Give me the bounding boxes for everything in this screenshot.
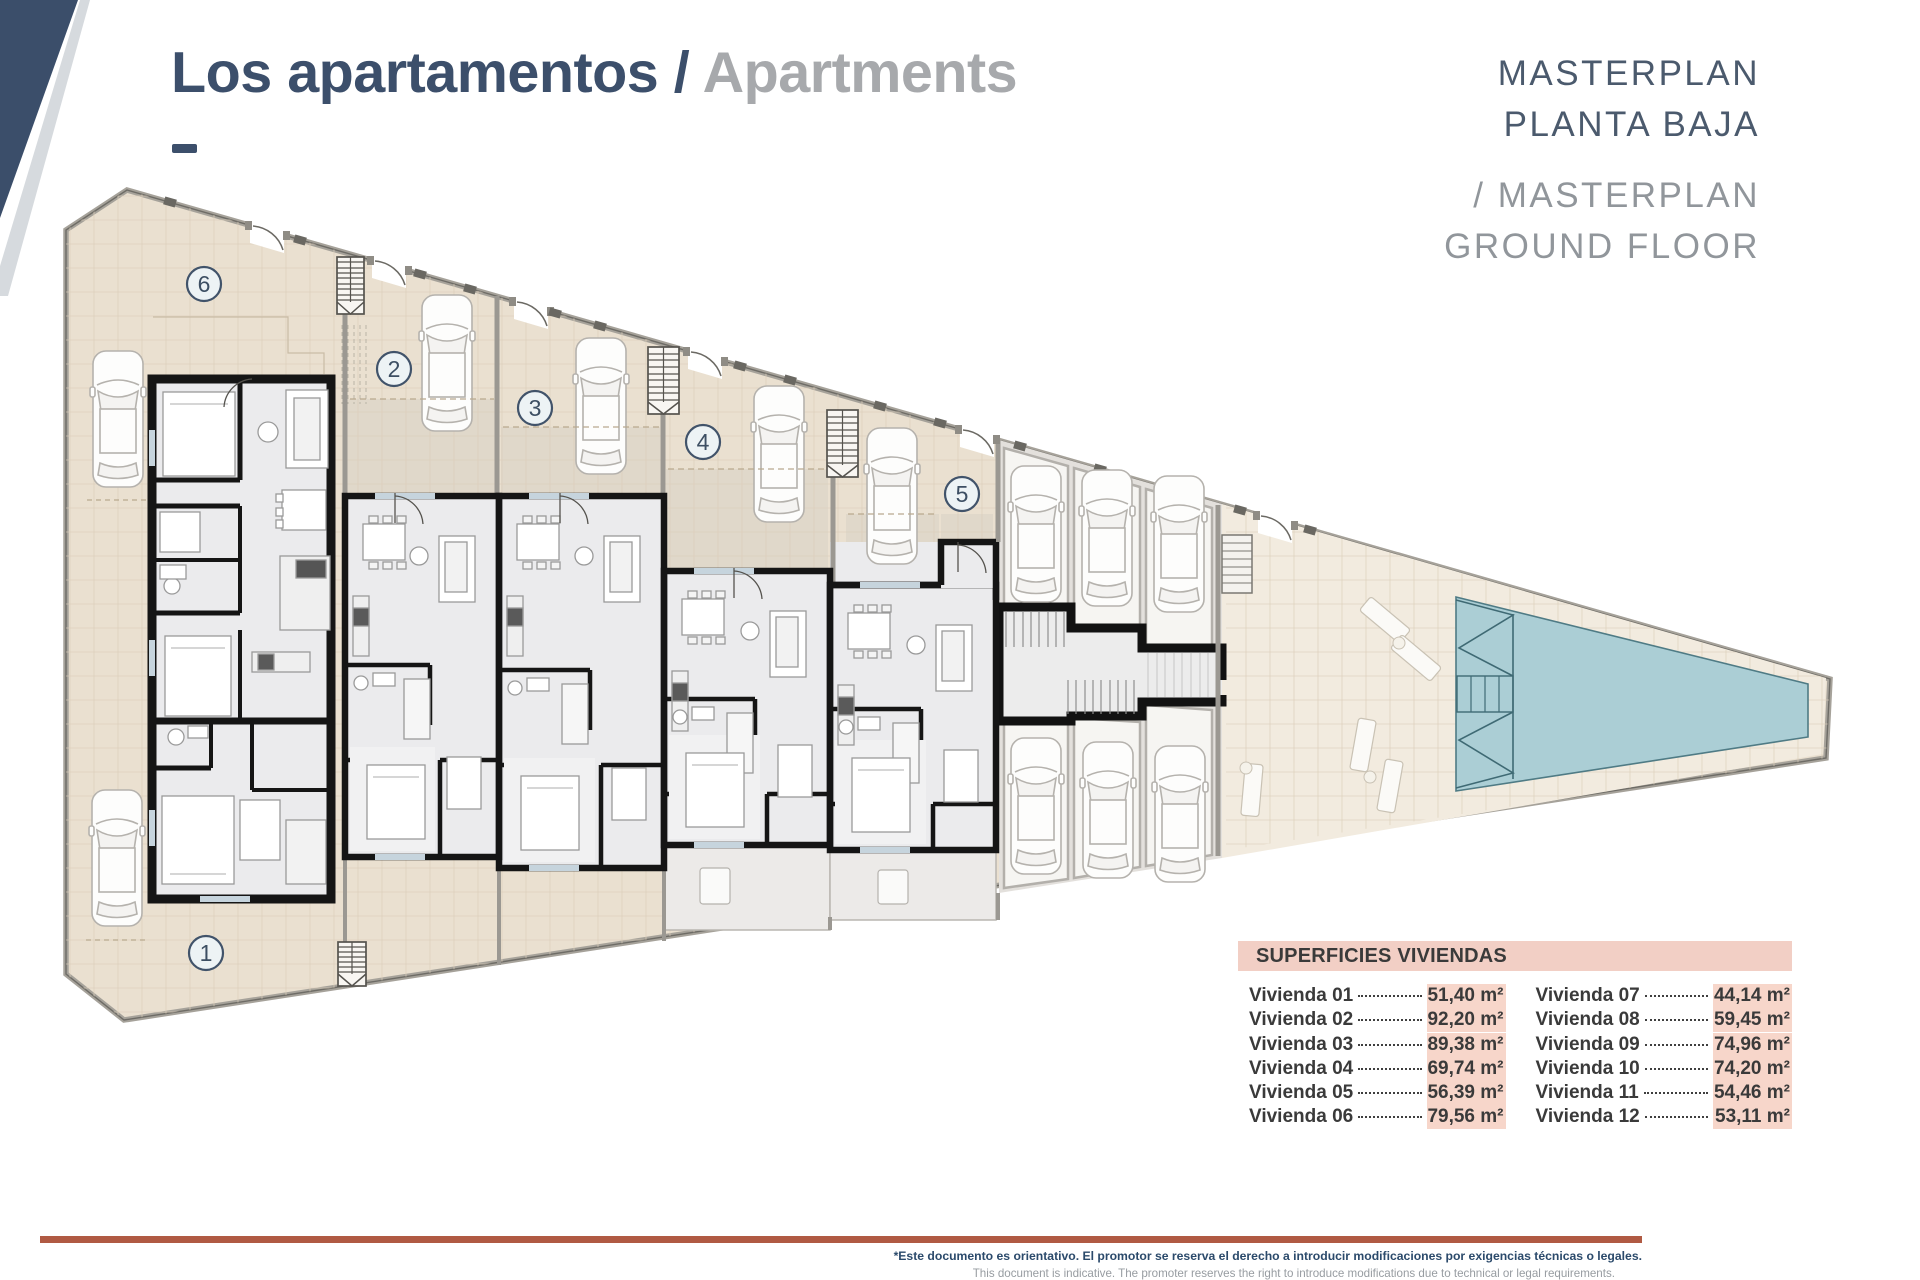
svg-text:4: 4	[697, 429, 710, 455]
svg-text:2: 2	[388, 356, 401, 382]
svg-text:5: 5	[956, 481, 969, 507]
svg-text:6: 6	[198, 271, 211, 297]
svg-text:3: 3	[529, 395, 542, 421]
svg-text:1: 1	[200, 940, 213, 966]
